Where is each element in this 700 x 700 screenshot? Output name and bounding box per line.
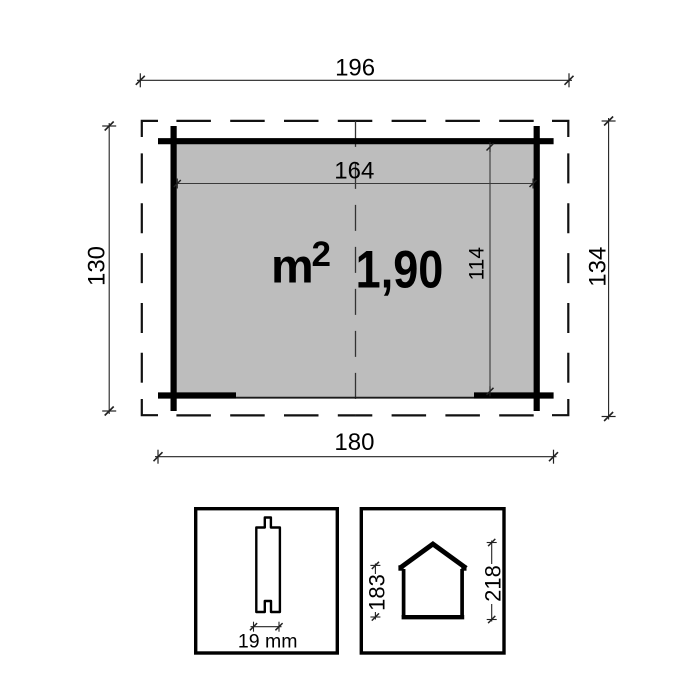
svg-text:218: 218 (481, 565, 506, 602)
svg-text:164: 164 (334, 158, 374, 185)
svg-text:196: 196 (335, 55, 375, 82)
svg-text:114: 114 (466, 247, 489, 281)
svg-text:19 mm: 19 mm (238, 630, 298, 652)
svg-text:2: 2 (312, 235, 331, 274)
svg-text:1,90: 1,90 (356, 240, 444, 299)
svg-text:m: m (271, 241, 314, 294)
svg-text:183: 183 (365, 574, 390, 611)
svg-text:130: 130 (84, 246, 111, 286)
svg-text:134: 134 (585, 247, 612, 287)
svg-text:180: 180 (334, 429, 374, 456)
